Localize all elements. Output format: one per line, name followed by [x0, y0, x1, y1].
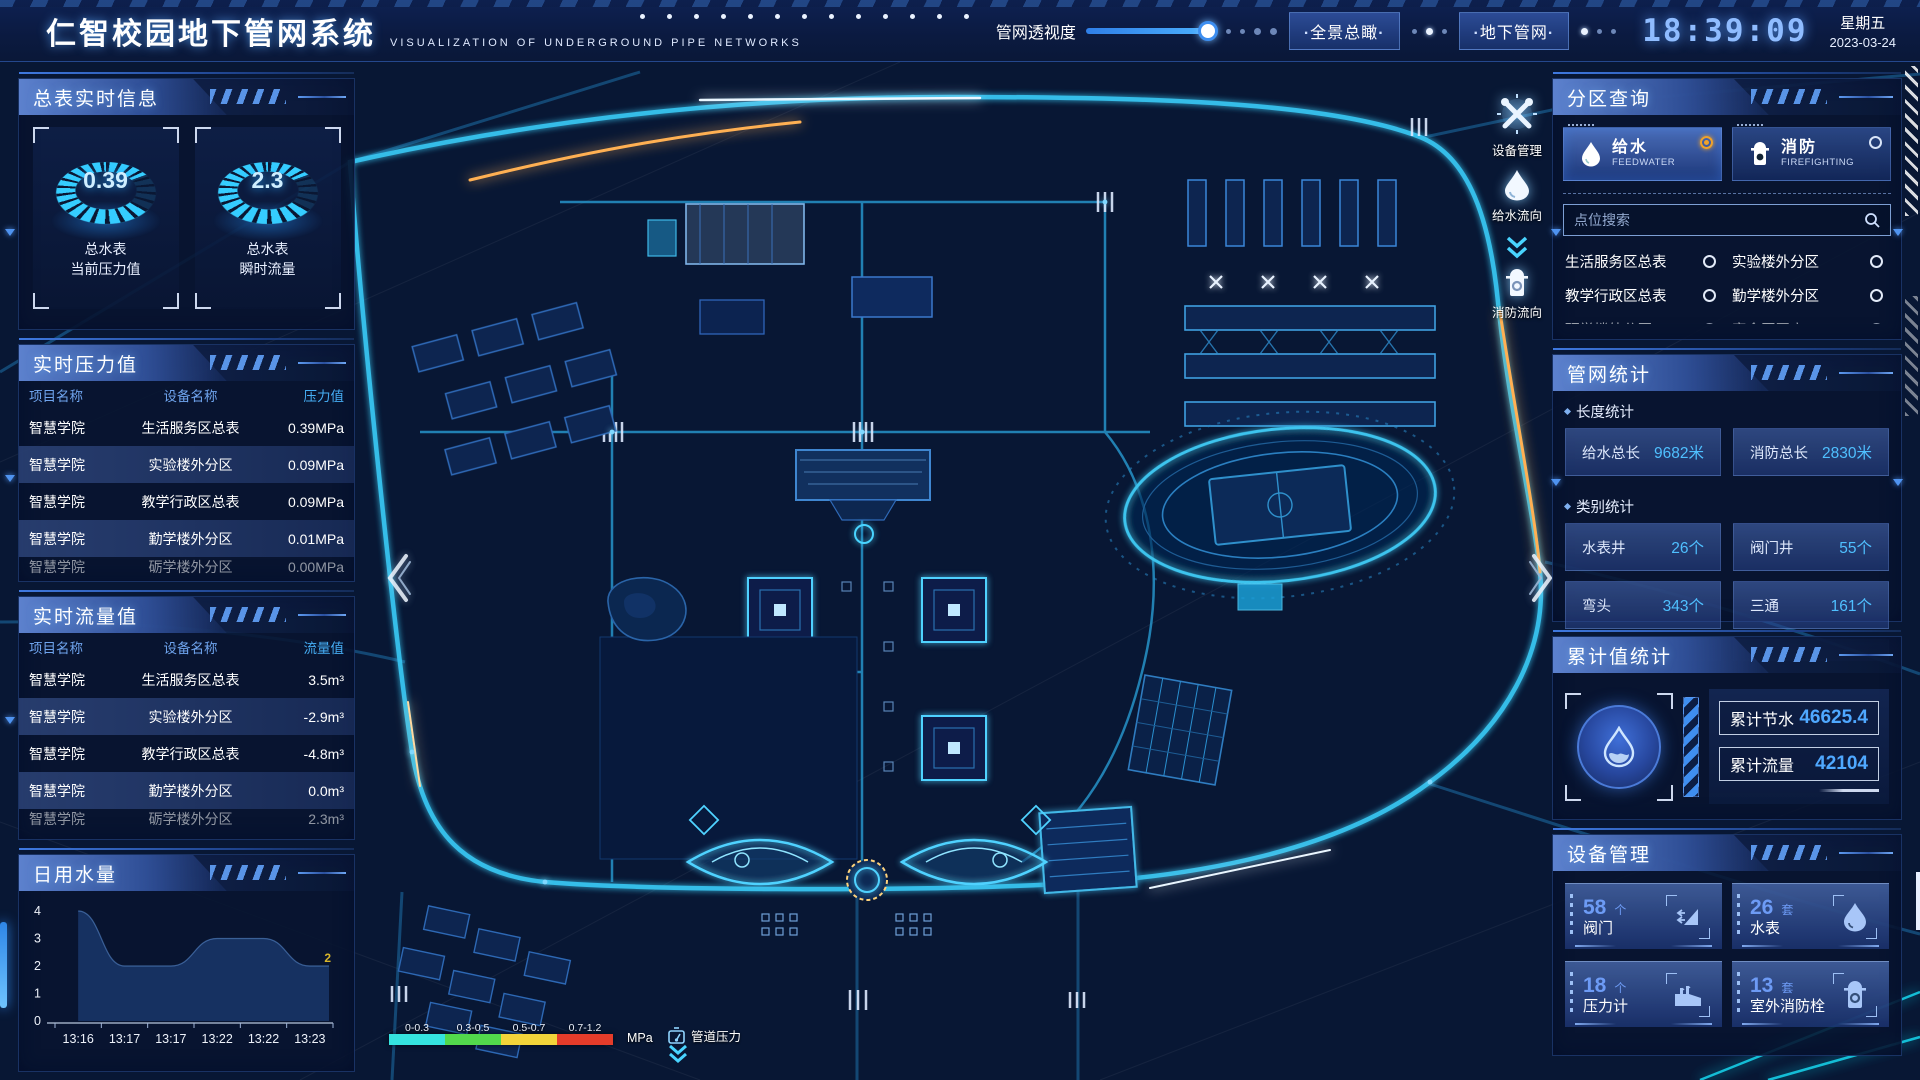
flow-gauge: 2.3 总水表 瞬时流量: [195, 127, 341, 309]
weekday-label: 星期五: [1840, 12, 1885, 33]
device-card-water-meter: 26套水表: [1732, 883, 1889, 949]
table-row: 智慧学院教学行政区总表0.09MPa: [19, 483, 354, 520]
gauge-label-line2: 当前压力值: [33, 259, 179, 279]
panel-title: 实时压力值: [33, 350, 138, 377]
pipe-pressure-label: 管道压力: [668, 1026, 741, 1045]
pipe-stats-panel: 管网统计 长度统计 给水总长9682米 消防总长2830米 类别统计 水表井26…: [1552, 354, 1902, 622]
flow-table-panel: 实时流量值 项目名称 设备名称 流量值 智慧学院生活服务区总表3.5m³ 智慧学…: [18, 596, 355, 840]
tab-label: 给水: [1612, 139, 1675, 157]
edge-decoration: [1905, 66, 1918, 216]
stat-card: 给水总长9682米: [1565, 428, 1721, 476]
pressure-legend: 0-0.30.3-0.5 0.5-0.70.7-1.2 MPa: [389, 1022, 653, 1045]
svg-text:2: 2: [324, 951, 331, 965]
gauge-value: 0.39: [47, 167, 165, 194]
table-row: 智慧学院砺学楼外分区2.3m³: [19, 809, 354, 829]
table-row: 智慧学院实验楼外分区0.09MPa: [19, 446, 354, 483]
water-drop-icon: [1580, 141, 1602, 167]
radio-ring[interactable]: [1870, 289, 1883, 302]
svg-text:4: 4: [34, 904, 41, 918]
edge-decoration: [1905, 296, 1918, 416]
zone-item[interactable]: 砺学楼外分区: [1565, 312, 1722, 324]
tab-sublabel: FIREFIGHTING: [1781, 158, 1854, 169]
pressure-meter-icon: [668, 1027, 685, 1044]
cumulative-panel: 累计值统计 累计节水 46625.4 累计流量: [1552, 636, 1902, 820]
meter-panel: 总表实时信息 0.39 总水表 当前压力值: [18, 78, 355, 330]
daily-usage-chart: 0123413:1613:1713:1713:2213:2213:232: [21, 895, 343, 1063]
scroll-marker: [5, 475, 15, 482]
tab-firefighting[interactable]: 消防 FIREFIGHTING: [1732, 127, 1891, 181]
stripe-divider: [1683, 697, 1699, 797]
tool-label[interactable]: 设备管理: [1492, 140, 1542, 159]
panel-title: 实时流量值: [33, 602, 138, 629]
stat-card: 弯头343个: [1565, 581, 1721, 629]
radio-ring[interactable]: [1703, 289, 1716, 302]
zone-item[interactable]: 教学行政区总表: [1565, 278, 1722, 312]
scroll-marker: [1893, 229, 1903, 236]
tab-radio-selected[interactable]: [1700, 136, 1713, 149]
slider-thumb[interactable]: [1198, 21, 1218, 41]
app-subtitle: VISUALIZATION OF UNDERGROUND PIPE NETWOR…: [390, 37, 802, 53]
gymnasium: [1039, 807, 1136, 893]
slash-decoration: [1751, 845, 1827, 860]
svg-text:13:23: 13:23: [294, 1032, 325, 1046]
underground-button[interactable]: 地下管网: [1459, 12, 1570, 50]
length-stats-label: 长度统计: [1553, 391, 1901, 428]
map-tools-column: 设备管理 给水流向 消防流向: [1486, 92, 1548, 331]
chevron-down-icon: [1506, 236, 1528, 260]
pressure-gauge-icon: [1673, 982, 1703, 1008]
panel-title: 累计值统计: [1567, 642, 1672, 669]
scroll-marker: [1551, 229, 1561, 236]
table-row: 智慧学院砺学楼外分区0.00MPa: [19, 557, 354, 577]
app-title: 仁智校园地下管网系统: [46, 9, 376, 53]
device-card-valve: 58个阀门: [1565, 883, 1722, 949]
hydrant-icon: [1749, 141, 1771, 167]
corner-glow-bar: [0, 922, 7, 1008]
panel-title: 日用水量: [33, 860, 117, 887]
gauge-label-line2: 瞬时流量: [195, 259, 341, 279]
tab-feedwater[interactable]: 给水 FEEDWATER: [1563, 127, 1722, 181]
slash-decoration: [1751, 647, 1827, 662]
cumulative-saved-box: 累计节水 46625.4: [1719, 701, 1879, 735]
carousel-left-arrow[interactable]: [382, 552, 412, 604]
edge-tick: [1916, 872, 1920, 930]
category-stats-label: 类别统计: [1553, 486, 1901, 523]
scroll-marker: [1893, 479, 1903, 486]
tab-radio[interactable]: [1869, 136, 1882, 149]
radio-ring[interactable]: [1703, 323, 1716, 325]
daily-usage-panel: 日用水量 0123413:1613:1713:1713:2213:2213:23…: [18, 854, 355, 1072]
date-block: 星期五 2023-03-24: [1830, 12, 1897, 50]
table-row: 智慧学院实验楼外分区-2.9m³: [19, 698, 354, 735]
water-meter-icon: [1843, 902, 1867, 932]
zone-item[interactable]: 生活服务区总表: [1565, 244, 1722, 278]
dash-decoration: [1819, 789, 1879, 792]
transparency-slider-group: 管网透视度: [996, 19, 1214, 43]
dot-separator: [1226, 28, 1277, 35]
slash-decoration: [1751, 89, 1827, 104]
search-input[interactable]: [1564, 212, 1864, 228]
table-row: 智慧学院勤学楼外分区0.01MPa: [19, 520, 354, 557]
device-card-pressure-gauge: 18个压力计: [1565, 961, 1722, 1027]
dashboard-root: { "header": { "title": "仁智校园地下管网系统", "su…: [0, 0, 1920, 1080]
gauge-value: 2.3: [209, 167, 327, 194]
zone-item[interactable]: 实验楼外分区: [1732, 244, 1889, 278]
header-dots: [640, 14, 969, 19]
overview-button[interactable]: 全景总瞰: [1289, 12, 1400, 50]
legend-unit: MPa: [627, 1031, 653, 1045]
slash-decoration: [210, 607, 286, 622]
tool-label[interactable]: 消防流向: [1492, 302, 1542, 321]
water-emblem: [1565, 693, 1673, 801]
date-label: 2023-03-24: [1830, 35, 1897, 50]
digital-clock: 18:39:09: [1642, 13, 1807, 49]
tab-sublabel: FEEDWATER: [1612, 158, 1675, 169]
stat-card: 三通161个: [1733, 581, 1889, 629]
water-drop-icon[interactable]: [1504, 169, 1530, 201]
panel-title: 设备管理: [1567, 840, 1651, 867]
water-drop-icon: [1602, 726, 1636, 768]
hydrant-icon[interactable]: [1504, 268, 1530, 298]
transparency-slider[interactable]: [1086, 28, 1214, 34]
chevron-down-icon: [668, 1044, 688, 1064]
panel-title: 分区查询: [1567, 84, 1651, 111]
grid-block: [1128, 675, 1231, 785]
svg-text:2: 2: [34, 959, 41, 973]
svg-text:13:16: 13:16: [63, 1032, 94, 1046]
table-row: 智慧学院教学行政区总表-4.8m³: [19, 735, 354, 772]
device-card-hydrant: 13套室外消防栓: [1732, 961, 1889, 1027]
svg-text:3: 3: [34, 932, 41, 946]
radio-ring[interactable]: [1870, 255, 1883, 268]
zone-list: 生活服务区总表 实验楼外分区 教学行政区总表 勤学楼外分区 砺学楼外分区 宿舍区…: [1553, 236, 1901, 324]
slash-decoration: [210, 865, 286, 880]
svg-text:0: 0: [34, 1014, 41, 1028]
svg-text:1: 1: [34, 987, 41, 1001]
svg-text:13:22: 13:22: [202, 1032, 233, 1046]
scroll-marker: [5, 229, 15, 236]
radio-ring[interactable]: [1703, 255, 1716, 268]
dot-separator: [1581, 28, 1616, 35]
stat-card: 消防总长2830米: [1733, 428, 1889, 476]
gauge-label-line1: 总水表: [195, 239, 341, 259]
valve-icon: [1674, 903, 1702, 931]
dot-separator: [1412, 28, 1447, 35]
device-mgmt-panel: 设备管理 58个阀门 26套水表 18个压力计 13套室外消防栓: [1552, 834, 1902, 1056]
pressure-table-panel: 实时压力值 项目名称 设备名称 压力值 智慧学院生活服务区总表0.39MPa 智…: [18, 344, 355, 582]
stat-card: 水表井26个: [1565, 523, 1721, 571]
right-sidebar: 分区查询 给水 FEEDWATER 消防 FIREFIGHTING: [1552, 78, 1902, 1056]
transparency-label: 管网透视度: [996, 19, 1076, 43]
table-row: 智慧学院生活服务区总表3.5m³: [19, 661, 354, 698]
slash-decoration: [210, 89, 286, 104]
divider: [1563, 193, 1891, 194]
point-search[interactable]: [1563, 204, 1891, 236]
panel-title: 总表实时信息: [33, 84, 159, 111]
scroll-marker: [1551, 479, 1561, 486]
svg-text:13:17: 13:17: [109, 1032, 140, 1046]
stat-card: 阀门井55个: [1733, 523, 1889, 571]
cumulative-flow-box: 累计流量 42104: [1719, 747, 1879, 781]
tool-label[interactable]: 给水流向: [1492, 205, 1542, 224]
table-header: 项目名称 设备名称 流量值: [19, 633, 354, 661]
top-header: 仁智校园地下管网系统 VISUALIZATION OF UNDERGROUND …: [0, 0, 1920, 62]
legend-color-bar: [389, 1034, 613, 1045]
svg-text:13:22: 13:22: [248, 1032, 279, 1046]
zone-item[interactable]: 宿舍区泵房: [1732, 312, 1889, 324]
scroll-marker: [5, 717, 15, 724]
table-header: 项目名称 设备名称 压力值: [19, 381, 354, 409]
slash-decoration: [210, 355, 286, 370]
panel-title: 管网统计: [1567, 360, 1651, 387]
radio-ring[interactable]: [1870, 323, 1883, 325]
zone-item[interactable]: 勤学楼外分区: [1732, 278, 1889, 312]
table-row: 智慧学院勤学楼外分区0.0m³: [19, 772, 354, 809]
outdoor-hydrant-icon: [1843, 980, 1867, 1010]
zone-query-panel: 分区查询 给水 FEEDWATER 消防 FIREFIGHTING: [1552, 78, 1902, 340]
gauge-label-line1: 总水表: [33, 239, 179, 259]
tools-icon[interactable]: [1495, 92, 1539, 136]
search-icon[interactable]: [1864, 212, 1880, 228]
tab-label: 消防: [1781, 139, 1854, 157]
svg-text:13:17: 13:17: [155, 1032, 186, 1046]
left-sidebar: 总表实时信息 0.39 总水表 当前压力值: [18, 78, 355, 1072]
table-row: 智慧学院生活服务区总表0.39MPa: [19, 409, 354, 446]
pressure-gauge: 0.39 总水表 当前压力值: [33, 127, 179, 309]
slash-decoration: [1751, 365, 1827, 380]
